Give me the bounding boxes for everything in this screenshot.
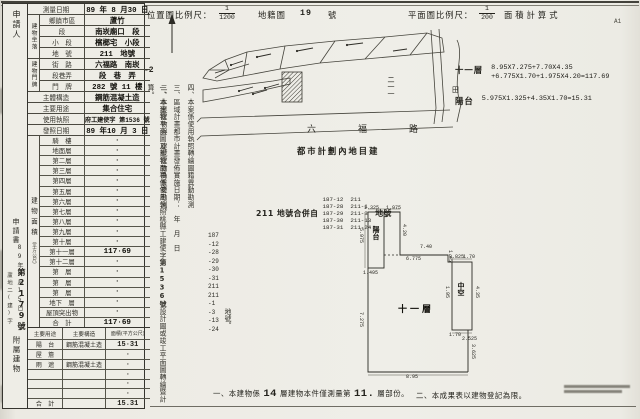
footer-note-1: 一、本建物係14層建物本件僅測量第11.層部份。 xyxy=(213,388,409,400)
annex-structure: 鋼筋混凝土造 xyxy=(63,340,106,349)
floor-area-value: · xyxy=(85,308,150,316)
note-2: 二、本案建物與 建號建物為重複勘測。 xyxy=(157,84,169,406)
annex-structure xyxy=(63,380,106,389)
table-row: 段南崁廟口 段 xyxy=(28,26,150,37)
plan-dimension: 1.325 xyxy=(364,205,379,211)
floor-area-value: · xyxy=(85,258,150,266)
parcel-number: -13 xyxy=(208,317,219,326)
table-row: 門 牌282 號 11 樓 xyxy=(28,81,150,92)
plan-dimension: 7.40 xyxy=(420,244,432,250)
annex-header: 主要用途 xyxy=(28,328,63,339)
floor-row: 地面層· xyxy=(40,146,150,156)
floor-area-section: 建物面積 （平方公尺） 騎 樓·地面層·第二層·第三層·第四層·第五層·第六層·… xyxy=(28,136,150,328)
floor-calc-row: 十一層 8.95X7.275+7.70X4.35 +6.775X1.70+1.9… xyxy=(455,64,609,82)
area-calculation-block: 十一層 8.95X7.275+7.70X4.35 +6.775X1.70+1.9… xyxy=(455,64,609,107)
row-label: 主體構造 xyxy=(28,92,85,102)
plan-scale-fraction: 1200 xyxy=(479,6,495,21)
row-value: 檳榔宅 小段 xyxy=(85,37,150,48)
group-label-door: 建物門牌 xyxy=(28,59,40,92)
parcel-211-label: 二一一 xyxy=(387,76,395,97)
parcel-number: -31 xyxy=(208,275,219,284)
row-label: 地 號 xyxy=(40,48,85,58)
application-label: 申請書 xyxy=(11,218,21,245)
floor-name: 第三層 xyxy=(40,166,85,175)
floor-rows: 騎 樓·地面層·第二層·第三層·第四層·第五層·第六層·第七層·第八層·第九層·… xyxy=(40,136,150,327)
row-value: 蘆竹 xyxy=(85,15,150,26)
floor-row: 第 層· xyxy=(40,278,150,288)
floor-area-value: · xyxy=(85,278,150,286)
annex-row: 屋 簷· xyxy=(28,350,150,360)
row-label: 鄉鎮市區 xyxy=(40,15,85,25)
zoning-title: 都市計劃內地目建 xyxy=(297,145,379,157)
floor-row: 第 層· xyxy=(40,267,150,277)
cadastral-map-number: 19 xyxy=(300,9,312,18)
floor-name: 地下 層 xyxy=(40,298,85,307)
floor-row: 第七層· xyxy=(40,207,150,217)
floor-name: 第 層 xyxy=(40,267,85,276)
table-row: 測量日期89 年 8 月30 日 xyxy=(28,4,150,15)
location-map: 六福路 二一一 田 xyxy=(195,26,470,146)
location-scale-fraction: 11200 xyxy=(219,6,235,21)
floor-row: 第六層· xyxy=(40,197,150,207)
annex-structure xyxy=(63,370,106,379)
row-label: 段 xyxy=(40,26,85,36)
floor-calc-line2: +6.775X1.70+1.975X4.20=117.69 xyxy=(491,73,609,81)
floor-row: 第十一層117·69 xyxy=(40,247,150,257)
plan-dimension: 1.975 xyxy=(386,205,401,211)
table-row: 地 號211 地號 xyxy=(28,48,150,59)
floor-name: 第四層 xyxy=(40,176,85,185)
area-formula-label: 面積計算式 xyxy=(504,9,561,21)
table-row: 街 路六福路 南崁 xyxy=(28,59,150,70)
floor-area-value: · xyxy=(85,137,150,145)
annex-header: 主要構造 xyxy=(63,328,106,339)
parcel-number: 211 xyxy=(208,283,219,292)
parcel-number: -3 xyxy=(208,309,219,318)
annex-row: · xyxy=(28,380,150,390)
parcel-number: -24 xyxy=(208,326,219,335)
floor-area-value: 117·69 xyxy=(85,248,150,256)
floor-name: 第十層 xyxy=(40,237,85,246)
row-value: 段 巷 弄 xyxy=(85,70,150,81)
floor-name: 第六層 xyxy=(40,197,85,206)
bottom-rule xyxy=(150,406,636,407)
group-label-site: 建物坐落 xyxy=(28,15,40,59)
row-value: 鋼筋混凝土造 xyxy=(85,92,150,103)
applicant-label: 申請人 xyxy=(11,10,22,40)
plan-dimension: 5.975 xyxy=(358,228,364,243)
floor-name: 第五層 xyxy=(40,187,85,196)
balcony-calc-line: 5.975X1.325+4.35X1.70=15.31 xyxy=(482,95,592,104)
floor-name: 第七層 xyxy=(40,207,85,216)
annex-use: 合 計 xyxy=(28,399,63,408)
parcel-list-suffix: 地號。 xyxy=(222,308,232,328)
annex-structure xyxy=(63,399,106,408)
floor-area-value: · xyxy=(85,177,150,185)
floor-row: 第八層· xyxy=(40,217,150,227)
floor-area-value: · xyxy=(85,157,150,165)
balcony-outline xyxy=(368,212,384,268)
table-row: 段巷弄段 巷 弄 xyxy=(28,70,150,81)
row-label: 門 牌 xyxy=(40,81,85,91)
plan-dimension: 6.775 xyxy=(406,256,421,262)
floor-row: 騎 樓· xyxy=(40,136,150,146)
annex-use: 雨 遮 xyxy=(28,360,63,369)
floor-name: 地面層 xyxy=(40,146,85,155)
floor-name: 第十一層 xyxy=(40,247,85,256)
row-label: 段巷弄 xyxy=(40,70,85,80)
floor-row: 第十層· xyxy=(40,237,150,247)
floor-area-value: · xyxy=(85,217,150,225)
floor-row: 第五層· xyxy=(40,187,150,197)
floor-area-value: · xyxy=(85,238,150,246)
cadastral-map-unit: 號 xyxy=(328,9,337,21)
floor-name: 第 層 xyxy=(40,278,85,287)
road-label: 六福路 xyxy=(307,123,460,135)
floor-area-value: · xyxy=(85,187,150,195)
parcel-number: 187 xyxy=(208,232,219,241)
annex-use xyxy=(28,389,63,398)
plan-dimension: 1.70 xyxy=(463,254,475,260)
floor-area-value: · xyxy=(85,167,150,175)
floor-name: 第九層 xyxy=(40,227,85,236)
void-outline xyxy=(452,262,472,330)
annex-structure xyxy=(63,389,106,398)
floor-name: 屋頂突出物 xyxy=(40,308,85,317)
table-row: 發照日期89 年10 月 3 日 xyxy=(28,125,150,136)
floor-area-value: · xyxy=(85,298,150,306)
row-label: 街 路 xyxy=(40,59,85,69)
floor-name: 第二層 xyxy=(40,156,85,165)
annex-use xyxy=(28,370,63,379)
floor-name: 合 計 xyxy=(40,318,85,327)
floor-name: 第八層 xyxy=(40,217,85,226)
annex-section: 主要用途 主要構造 面積(平方公尺) 陽 台鋼筋混凝土造15·31屋 簷·雨 遮… xyxy=(28,328,150,408)
survey-info-section: 測量日期89 年 8 月30 日 鄉鎮市區蘆竹 段南崁廟口 段 小 段檳榔宅 小… xyxy=(28,4,150,136)
floor-row: 地下 層· xyxy=(40,298,150,308)
row-label: 測量日期 xyxy=(28,4,85,14)
annex-row: · xyxy=(28,370,150,380)
row-label: 使用執照 xyxy=(28,114,85,124)
total-floors-number: 14 xyxy=(260,388,280,400)
annex-structure xyxy=(63,350,106,359)
plan-dimension: 4.20 xyxy=(401,224,407,236)
survey-table: 申請人 申請書 89年8月15日 蘆地二(建)字 第2179號 附屬建物 測量日… xyxy=(2,3,145,409)
floor-area-value: · xyxy=(85,228,150,236)
row-value: 府工建使字 第1536 號 xyxy=(85,115,150,124)
row-label: 小 段 xyxy=(40,37,85,47)
floor-name: 第 層 xyxy=(40,288,85,297)
row-value: 六福路 南崁 xyxy=(85,59,150,70)
floor-row: 第九層· xyxy=(40,227,150,237)
annex-row: 陽 台鋼筋混凝土造15·31 xyxy=(28,340,150,350)
annex-use xyxy=(28,380,63,389)
plan-dimension: 2.525 xyxy=(462,336,477,342)
parcel-number-list: 187-12-28-29-30-31211211-1-3-13-24 xyxy=(208,232,219,334)
floor-row: 第二層· xyxy=(40,156,150,166)
subject-building-footprint xyxy=(282,72,302,102)
plan-label: 中空 xyxy=(456,282,466,296)
location-scale-label: 位置圖比例尺： xyxy=(147,9,212,21)
floor-name: 騎 樓 xyxy=(40,136,85,145)
plan-dimension: 3.625 xyxy=(470,344,476,359)
parcel-number: -29 xyxy=(208,258,219,267)
survey-result-sheet: 申請人 申請書 89年8月15日 蘆地二(建)字 第2179號 附屬建物 測量日… xyxy=(0,0,640,419)
row-value: 集合住宅 xyxy=(85,103,150,114)
receipt-number: 第2179號 xyxy=(16,268,27,332)
footer-note-2: 二、本成果表以建物登記為限。 xyxy=(416,390,526,401)
merge-prefix: 211 地號合併自 xyxy=(256,208,318,219)
floor-area-value: · xyxy=(85,197,150,205)
row-value: 89 年10 月 3 日 xyxy=(85,125,150,136)
floor-calc-line1: 8.95X7.275+7.70X4.35 xyxy=(491,64,573,72)
cadastral-map-label: 地籍圖 xyxy=(258,9,286,21)
house-number-suffix: -2 xyxy=(144,66,154,75)
plan-dimension: 1.70 xyxy=(449,332,461,338)
table-row: 主要用途集合住宅 xyxy=(28,103,150,114)
receipt-prefix: 蘆地二(建)字 xyxy=(5,272,13,326)
surveyed-floor-number: 11. xyxy=(351,388,377,400)
parcel-number: -1 xyxy=(208,300,219,309)
floor-name: 第十二層 xyxy=(40,257,85,266)
floor-row: 第三層· xyxy=(40,166,150,176)
plan-scale-label: 平面圖比例尺： xyxy=(408,9,473,21)
row-label: 主要用途 xyxy=(28,103,85,113)
annex-header-row: 主要用途 主要構造 面積(平方公尺) xyxy=(28,328,150,340)
balcony-calc-label: 陽台 xyxy=(455,95,474,107)
floor-row: 第 層· xyxy=(40,288,150,298)
row-value: 211 地號 xyxy=(85,48,150,59)
floor-row: 第十二層· xyxy=(40,257,150,267)
floor-area-value: 117·69 xyxy=(85,319,150,327)
annex-use: 陽 台 xyxy=(28,340,63,349)
annex-section-label: 附屬建物 xyxy=(11,336,22,374)
left-margin-strip: 申請人 申請書 89年8月15日 蘆地二(建)字 第2179號 附屬建物 xyxy=(3,4,28,408)
stamp-illegible xyxy=(564,385,630,393)
annex-structure: 鋼筋混凝土造 xyxy=(63,360,106,369)
plan-label: 陽台 xyxy=(371,226,381,240)
table-row: 主體構造鋼筋混凝土造 xyxy=(28,92,150,103)
floor-row: 屋頂突出物· xyxy=(40,308,150,318)
annex-row: · xyxy=(28,389,150,399)
plan-label: 十一層 xyxy=(398,302,434,315)
corner-mark: A1 xyxy=(614,18,621,25)
parcel-number: -12 xyxy=(208,241,219,250)
floor-calc-label: 十一層 xyxy=(455,64,483,76)
floor-area-value: · xyxy=(85,207,150,215)
annex-use: 屋 簷 xyxy=(28,350,63,359)
parcel-number: -28 xyxy=(208,249,219,258)
parcel-number: -30 xyxy=(208,266,219,275)
balcony-calc-row: 陽台 5.975X1.325+4.35X1.70=15.31 xyxy=(455,95,609,107)
north-arrow-icon xyxy=(165,13,179,55)
table-row: 鄉鎮市區蘆竹 xyxy=(28,15,150,26)
annex-rows: 陽 台鋼筋混凝土造15·31屋 簷·雨 遮鋼筋混凝土造····合 計15.31 xyxy=(28,340,150,408)
floor-area-value: · xyxy=(85,288,150,296)
parcel-number: 211 xyxy=(208,292,219,301)
floor-area-value: · xyxy=(85,147,150,155)
row-value: 南崁廟口 段 xyxy=(85,26,150,37)
floor-plan-drawing xyxy=(340,195,520,385)
plan-dimension: 7.275 xyxy=(358,312,364,327)
note-3: 三、區域計畫都市計畫發佈實施日期： 年 月 日 xyxy=(170,84,182,406)
floor-area-label: 建物面積 （平方公尺） xyxy=(28,136,40,327)
plan-dimension: 1.95 xyxy=(444,286,450,298)
floor-row: 合 計117·69 xyxy=(40,318,150,327)
table-row: 小 段檳榔宅 小段 xyxy=(28,37,150,48)
plan-dimension: 8.95 xyxy=(406,374,418,380)
table-row: 使用執照府工建使字 第1536 號 xyxy=(28,114,150,125)
row-value: 282 號 11 樓 xyxy=(85,81,150,92)
plan-dimension: 0.825 xyxy=(449,254,464,260)
floor-row: 第四層· xyxy=(40,176,150,186)
row-label: 發照日期 xyxy=(28,125,85,135)
plan-dimension: 4.35 xyxy=(474,286,480,298)
floor-area-value: · xyxy=(85,268,150,276)
annex-row: 合 計15.31 xyxy=(28,399,150,408)
row-value: 89 年 8 月30 日 xyxy=(85,4,150,15)
plan-dimension: 1.495 xyxy=(363,270,378,276)
annex-row: 雨 遮鋼筋混凝土造· xyxy=(28,360,150,370)
